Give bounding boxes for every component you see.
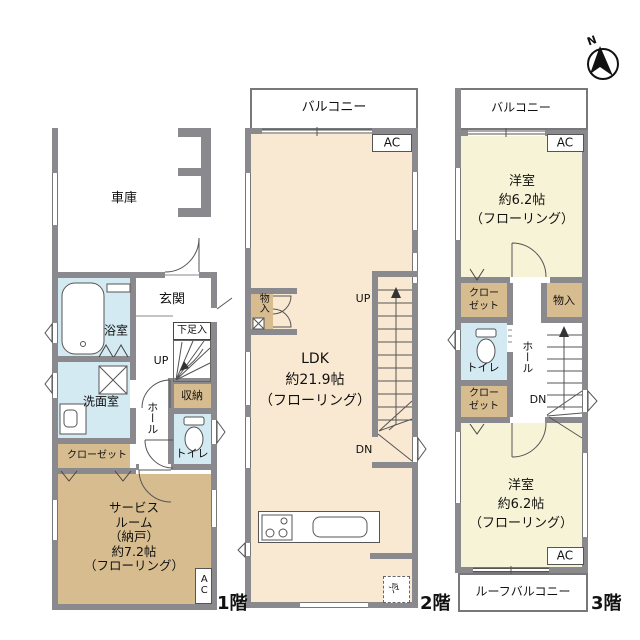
stairs-f3-treads xyxy=(547,335,582,407)
stairs-f1-arrow xyxy=(184,349,203,369)
wall xyxy=(52,540,58,604)
service-room-label: サービス ルーム （納戸） 約7.2帖 （フローリング） xyxy=(84,501,184,574)
window xyxy=(245,417,251,468)
wall xyxy=(168,414,174,464)
hall-f3-label: ホール xyxy=(521,341,533,374)
up-label-f2: UP xyxy=(356,293,371,305)
wall xyxy=(211,444,217,490)
bath-label: 浴室 xyxy=(104,325,128,338)
wall xyxy=(245,468,251,543)
ldk-label: LDK 約21.9帖 （フローリング） xyxy=(259,349,371,412)
wall xyxy=(372,271,418,277)
front-door-tick xyxy=(217,298,232,309)
compass xyxy=(588,46,618,79)
wall xyxy=(52,604,217,610)
window xyxy=(455,330,461,350)
wall xyxy=(178,208,211,217)
wall xyxy=(412,283,418,437)
casement-window-marker xyxy=(217,421,225,443)
wall xyxy=(541,317,582,323)
window xyxy=(455,168,461,240)
kitchen-counter xyxy=(258,511,380,543)
window xyxy=(211,420,217,444)
bedroom-bottom-label: 洋室 約6.2帖 （フローリング） xyxy=(469,476,573,533)
garage-label: 車庫 xyxy=(111,192,137,206)
wall xyxy=(52,225,58,272)
window xyxy=(412,253,418,283)
closet-f3-bottom-label: クロー ゼット xyxy=(469,388,499,413)
wall xyxy=(58,438,136,444)
closet-f3-top-label: クロー ゼット xyxy=(469,288,499,313)
balcony-f2-label: バルコニー xyxy=(302,101,367,115)
wall xyxy=(372,462,418,468)
wall xyxy=(136,464,139,470)
wall xyxy=(455,88,461,130)
shoe-cabinet-label: 下足入 xyxy=(177,326,207,337)
window xyxy=(300,602,368,608)
window xyxy=(582,453,588,537)
floor3-label: 3階 xyxy=(591,595,622,613)
compass-needle xyxy=(590,46,613,76)
window xyxy=(245,352,251,405)
wall xyxy=(582,130,588,390)
window xyxy=(455,432,461,503)
wall xyxy=(245,602,300,608)
wall xyxy=(168,384,174,408)
wall xyxy=(168,378,211,384)
window xyxy=(412,172,418,230)
hall-f1-label: ホール xyxy=(146,402,158,435)
window xyxy=(412,437,418,462)
casement-window-marker xyxy=(45,324,52,342)
window xyxy=(52,500,58,540)
entrance-label: 玄関 xyxy=(159,293,185,307)
toilet-f3-slide-door xyxy=(508,330,512,342)
toilet-f3-label: トイレ xyxy=(467,362,500,374)
casement-window-marker xyxy=(418,438,426,460)
wall xyxy=(171,464,211,470)
storage-f1-label: 収納 xyxy=(181,390,203,402)
wall xyxy=(412,230,418,253)
wall xyxy=(52,128,58,173)
casement-window-marker xyxy=(45,375,52,393)
wall xyxy=(461,317,513,323)
wall xyxy=(178,168,211,176)
wall xyxy=(412,462,418,602)
wall xyxy=(245,405,251,417)
wall xyxy=(550,277,588,283)
closet-f1-label: クローゼット xyxy=(67,451,127,462)
up-label-f1: UP xyxy=(154,355,169,367)
stairs-f3-arrowhead xyxy=(559,326,569,337)
wall xyxy=(168,408,211,414)
compass-circle xyxy=(588,49,618,79)
wall xyxy=(130,278,136,380)
stairs-f1-arrowhead xyxy=(180,361,189,371)
wall xyxy=(455,130,468,136)
wall xyxy=(211,322,217,420)
bedroom-top-label: 洋室 約6.2帖 （フローリング） xyxy=(470,172,574,229)
window xyxy=(245,543,251,556)
wall xyxy=(245,128,251,173)
bath-room xyxy=(58,278,130,356)
storage-f2-label: 物入 xyxy=(257,293,268,313)
stairs-f1-treads xyxy=(176,341,210,380)
casement-window-marker xyxy=(588,391,597,411)
front-door-opening xyxy=(211,308,217,322)
casement-window-marker xyxy=(238,543,245,557)
wall xyxy=(245,128,262,134)
wall xyxy=(372,277,378,437)
window xyxy=(582,390,588,412)
wall xyxy=(455,277,510,283)
roof-balcony-label: ルーフバルコニー xyxy=(475,586,570,599)
compass-north-label: N xyxy=(586,34,599,48)
casement-window-marker xyxy=(448,331,455,349)
wall xyxy=(52,278,58,323)
window xyxy=(245,173,251,248)
wall xyxy=(52,398,58,500)
floor1-label: 1階 xyxy=(217,595,248,613)
ac-f2-label: AC xyxy=(384,137,400,150)
window xyxy=(52,373,58,398)
entry-door-arc xyxy=(165,238,199,272)
stairs-f1 xyxy=(174,341,211,382)
wall xyxy=(58,356,136,362)
wall xyxy=(52,272,165,278)
washroom-label: 洗面室 xyxy=(83,396,119,409)
ac-f3-top-label: AC xyxy=(557,137,573,150)
wall xyxy=(251,329,297,335)
balcony-f3-label: バルコニー xyxy=(491,102,551,115)
wall xyxy=(412,128,418,172)
floor2-label: 2階 xyxy=(420,595,451,613)
window xyxy=(52,173,58,225)
dn-label-f2: DN xyxy=(356,444,373,456)
wall xyxy=(178,128,211,137)
wall xyxy=(455,417,510,423)
ac-f1-label: AC xyxy=(198,574,209,596)
window xyxy=(52,323,58,343)
wall xyxy=(455,503,461,573)
window xyxy=(211,490,217,527)
toilet-f1-label: トイレ xyxy=(176,448,209,460)
wall xyxy=(211,272,217,308)
dn-label-f3: DN xyxy=(530,394,547,406)
ac-f3-bottom-label: AC xyxy=(557,550,573,563)
floor-plan: 車庫 浴室 玄関 下足入 UP 収納 トイレ 洗面室 ホール クローゼット サー… xyxy=(0,0,640,640)
wall xyxy=(370,553,418,559)
storage-f3-label: 物入 xyxy=(553,295,575,307)
wall xyxy=(461,380,513,386)
wall xyxy=(58,468,136,474)
wall xyxy=(545,417,588,423)
